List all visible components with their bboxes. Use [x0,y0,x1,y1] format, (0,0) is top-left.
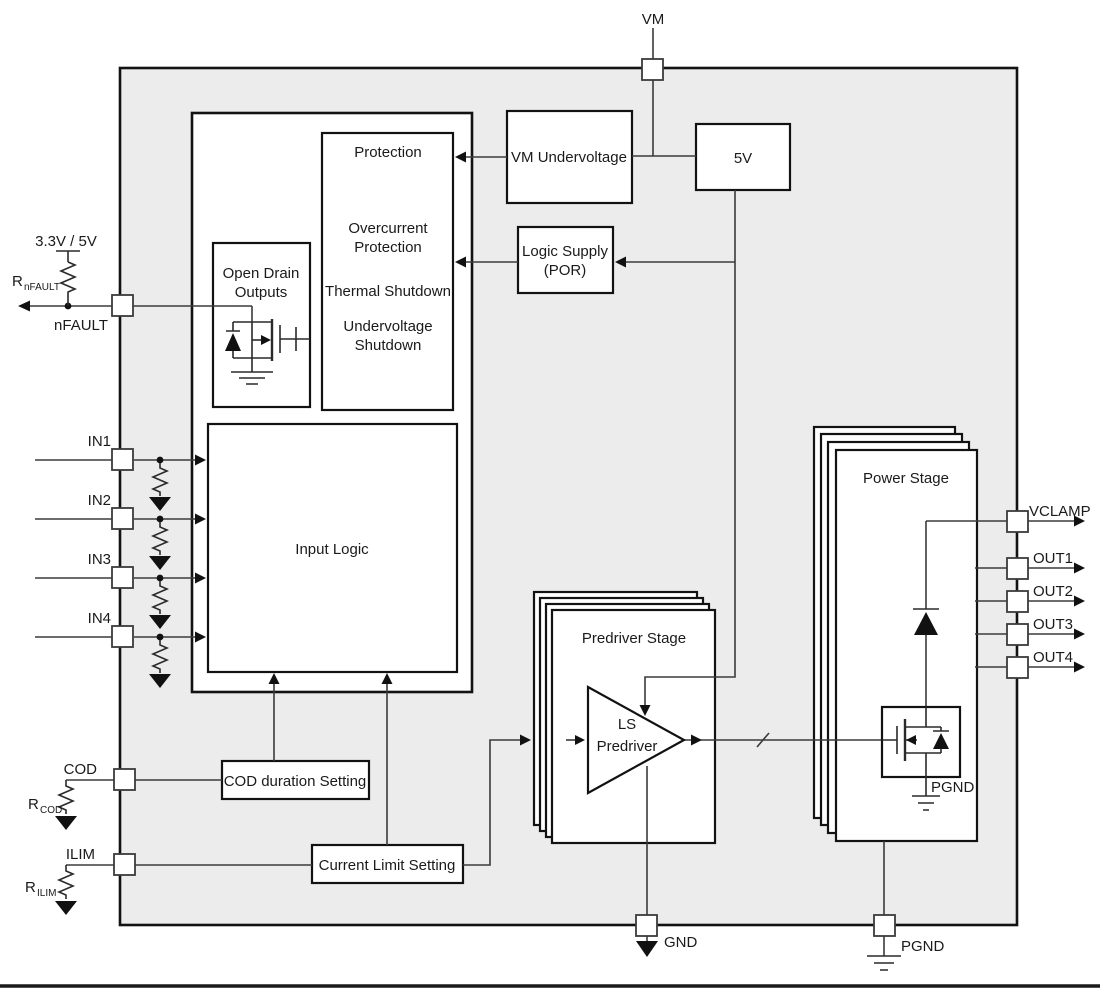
pin-label-gnd: GND [664,934,698,951]
vm-undervoltage-label: VM Undervoltage [511,149,627,166]
pin-out1 [1007,558,1028,579]
block-diagram: VM 3.3V / 5V R nFAULT nFAULT IN1 IN2 IN3… [0,0,1100,992]
cod-setting-label: COD duration Setting [224,773,367,790]
pin-out4 [1007,657,1028,678]
r-ilim-sub: ILIM [37,888,56,899]
protection-title: Protection [354,144,422,161]
pin-in1 [112,449,133,470]
pin-label-pgnd: PGND [901,938,945,955]
pin-label-out2: OUT2 [1033,583,1073,600]
r-cod-label: R [28,796,39,813]
block-protection [322,133,453,410]
pin-label-nfault: nFAULT [54,317,108,334]
pin-out2 [1007,591,1028,612]
pin-label-cod: COD [64,761,98,778]
logic-supply-label-1: Logic Supply [522,243,608,260]
pgnd-internal-label: PGND [931,779,975,796]
pin-label-vm: VM [642,11,665,28]
r-ilim-label: R [25,879,36,896]
pin-label-in1: IN1 [88,433,111,450]
pin-label-out1: OUT1 [1033,550,1073,567]
pin-pgnd [874,915,895,936]
logic-supply-label-2: (POR) [544,262,587,279]
pin-nfault [112,295,133,316]
pin-in2 [112,508,133,529]
protection-line-2: Protection [354,239,422,256]
pin-label-vclamp: VCLAMP [1029,503,1091,520]
pin-in3 [112,567,133,588]
block-logic-supply-por [518,227,613,293]
pin-label-ilim: ILIM [66,846,95,863]
pin-label-in4: IN4 [88,610,111,627]
pin-label-in2: IN2 [88,492,111,509]
current-limit-label: Current Limit Setting [319,857,456,874]
open-drain-label-2: Outputs [235,284,288,301]
pin-gnd [636,915,657,936]
input-logic-label: Input Logic [295,541,369,558]
supply-rail-label: 3.3V / 5V [35,233,97,250]
open-drain-label-1: Open Drain [223,265,300,282]
power-stage-label: Power Stage [863,470,949,487]
protection-line-4: Undervoltage [343,318,432,335]
diagram-canvas: VM 3.3V / 5V R nFAULT nFAULT IN1 IN2 IN3… [0,0,1100,992]
r-nfault-sub: nFAULT [24,282,60,293]
ls-predriver-label-2: Predriver [597,738,658,755]
predriver-stage-label: Predriver Stage [582,630,686,647]
pin-ilim [114,854,135,875]
pin-label-in3: IN3 [88,551,111,568]
pin-out3 [1007,624,1028,645]
protection-line-1: Overcurrent [348,220,428,237]
five-v-label: 5V [734,150,752,167]
r-cod-sub: COD [40,805,62,816]
pin-vclamp [1007,511,1028,532]
r-nfault-label: R [12,273,23,290]
ls-predriver-label-1: LS [618,716,636,733]
pin-label-out3: OUT3 [1033,616,1073,633]
pin-vm [642,59,663,80]
pin-in4 [112,626,133,647]
protection-line-3: Thermal Shutdown [325,283,451,300]
pin-label-out4: OUT4 [1033,649,1073,666]
protection-line-5: Shutdown [355,337,422,354]
pin-cod [114,769,135,790]
